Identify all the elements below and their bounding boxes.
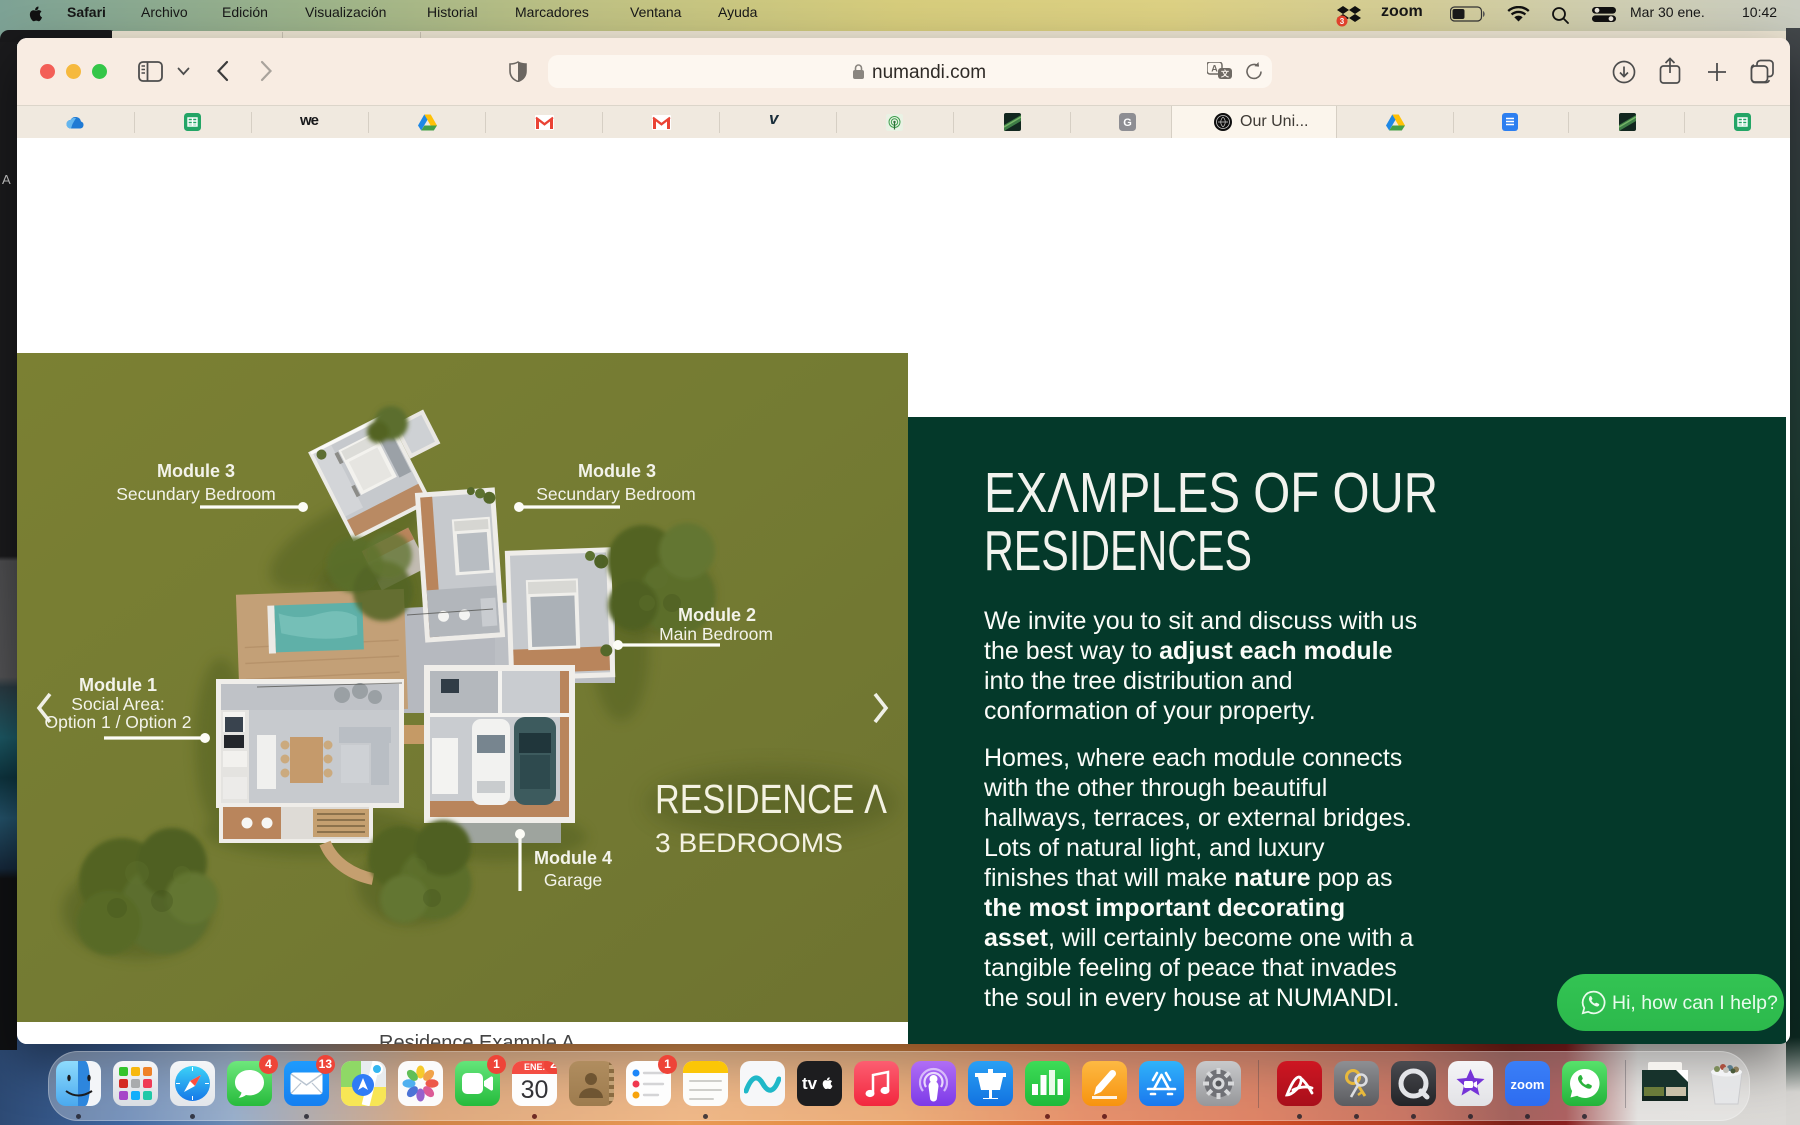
svg-text:G: G [1123, 117, 1132, 129]
svg-text:Module 2: Module 2 [678, 605, 756, 625]
svg-text:3: 3 [1340, 17, 1345, 26]
svg-text:Secundary Bedroom: Secundary Bedroom [536, 484, 696, 504]
svg-text:3 BEDROOMS: 3 BEDROOMS [655, 828, 843, 858]
svg-text:Secundary Bedroom: Secundary Bedroom [116, 484, 276, 504]
svg-text:Garage: Garage [544, 870, 602, 890]
svg-text:Social Area:: Social Area: [71, 694, 164, 714]
svg-text:A: A [1211, 64, 1218, 74]
svg-text:Main Bedroom: Main Bedroom [659, 624, 773, 644]
svg-text:Module 4: Module 4 [534, 848, 612, 868]
svg-text:文: 文 [1221, 69, 1230, 79]
svg-text:EXΛMPLES OF OUR: EXΛMPLES OF OUR [984, 461, 1438, 525]
svg-text:RESIDENCES: RESIDENCES [984, 519, 1252, 583]
svg-text:Option 1 / Option 2: Option 1 / Option 2 [45, 712, 192, 732]
svg-text:RESIDENCE Λ: RESIDENCE Λ [655, 776, 888, 822]
svg-text:Module 1: Module 1 [79, 675, 157, 695]
svg-text:Module 3: Module 3 [157, 461, 235, 481]
svg-text:Module 3: Module 3 [578, 461, 656, 481]
